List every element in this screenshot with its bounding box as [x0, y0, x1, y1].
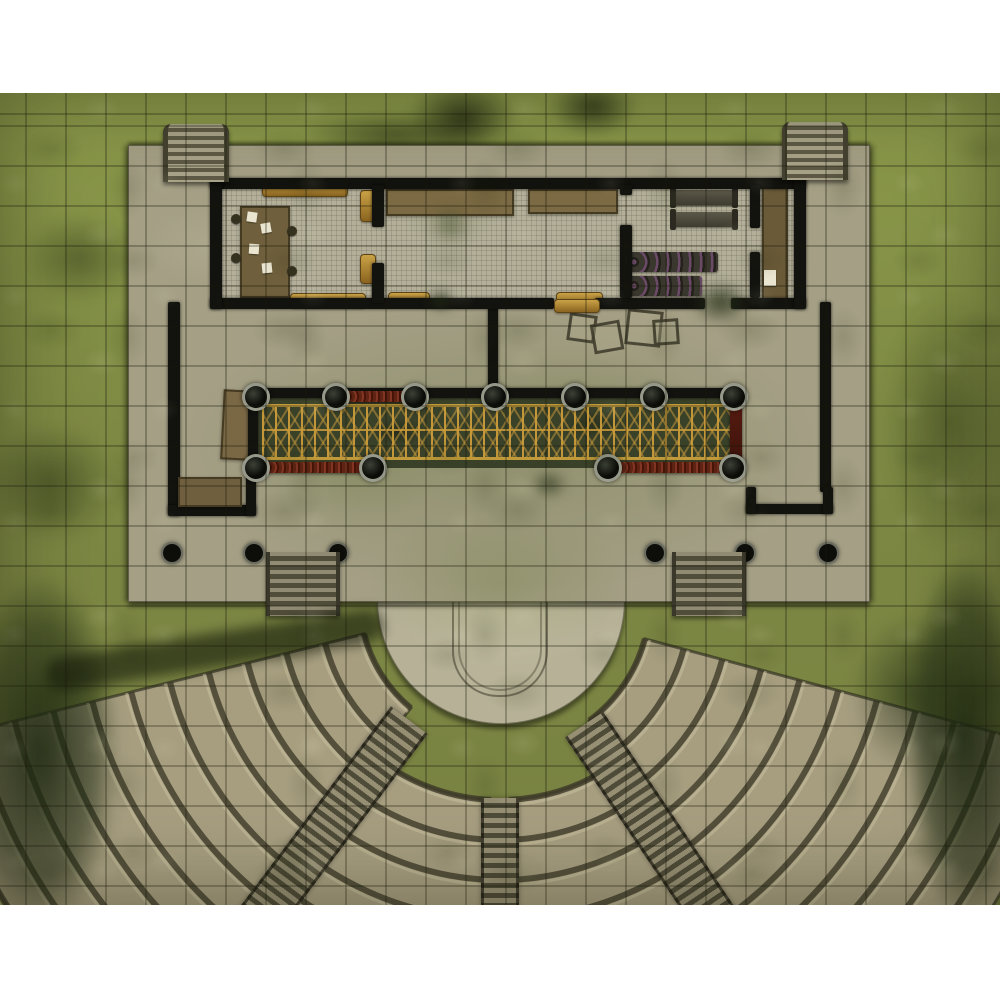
room-divider-inner — [750, 185, 760, 228]
courtyard-wall-east — [820, 302, 831, 492]
building-wall-north — [210, 178, 806, 189]
terrace-north-stairs-west — [163, 124, 229, 182]
courtyard-wall-east-leg — [746, 487, 756, 514]
weapon-rack — [628, 252, 718, 272]
bench — [672, 212, 736, 227]
bush-icon — [690, 279, 752, 325]
pergola-pillar — [640, 383, 668, 411]
room-divider-west — [372, 263, 384, 303]
papers — [249, 244, 260, 255]
pergola-pillar — [561, 383, 589, 411]
terrace-south-stairs-east — [672, 552, 746, 616]
floor-moss — [428, 203, 472, 247]
papers — [246, 211, 257, 222]
crate — [652, 318, 680, 346]
pergola-pillar — [359, 454, 387, 482]
battle-map — [0, 93, 1000, 905]
papers — [260, 222, 272, 234]
colonnade-pillar — [644, 542, 666, 564]
garland-vine — [615, 462, 727, 473]
bush-icon — [426, 287, 456, 313]
building-wall-east — [794, 178, 806, 309]
pergola-pillar — [322, 383, 350, 411]
alcove-table — [178, 477, 242, 507]
terrace-south-stairs-west — [266, 552, 340, 616]
courtyard-wall-east-return — [746, 504, 833, 514]
building-wall-west — [210, 178, 222, 309]
stool — [287, 266, 297, 276]
colonnade-pillar — [817, 542, 839, 564]
papers — [262, 263, 273, 274]
room-divider-inner — [750, 252, 760, 298]
pergola-pillar — [594, 454, 622, 482]
pergola-pillar — [719, 454, 747, 482]
forest-southwest — [0, 573, 120, 905]
door-mat — [554, 299, 600, 313]
building-wall-south — [595, 298, 705, 309]
forest-east-edge — [850, 613, 970, 773]
pergola-lattice — [262, 404, 738, 460]
counter-box — [764, 270, 776, 286]
pergola-pillar — [242, 383, 270, 411]
pergola-pillar — [242, 454, 270, 482]
pergola-pillar — [720, 383, 748, 411]
room-divider-west — [372, 185, 384, 227]
stool — [231, 214, 241, 224]
colonnade-pillar — [243, 542, 265, 564]
room-divider-east — [620, 225, 632, 298]
bush-icon — [530, 469, 568, 499]
counter — [528, 189, 618, 214]
bench — [672, 190, 736, 205]
crate — [590, 320, 625, 355]
courtyard-wall-east-leg — [823, 487, 833, 514]
pergola-pillar — [401, 383, 429, 411]
stool — [231, 253, 241, 263]
garland-vine — [264, 462, 366, 473]
garland-vine — [344, 391, 408, 402]
terrace-north-stairs-east — [782, 122, 848, 180]
room-divider-east — [620, 185, 632, 195]
stool — [287, 226, 297, 236]
courtyard-divider-stub — [488, 308, 498, 390]
radial-staircase — [481, 798, 519, 905]
battle-map-page — [0, 0, 1000, 1000]
weapon-rack — [628, 276, 702, 296]
pergola-pillar — [481, 383, 509, 411]
colonnade-pillar — [161, 542, 183, 564]
